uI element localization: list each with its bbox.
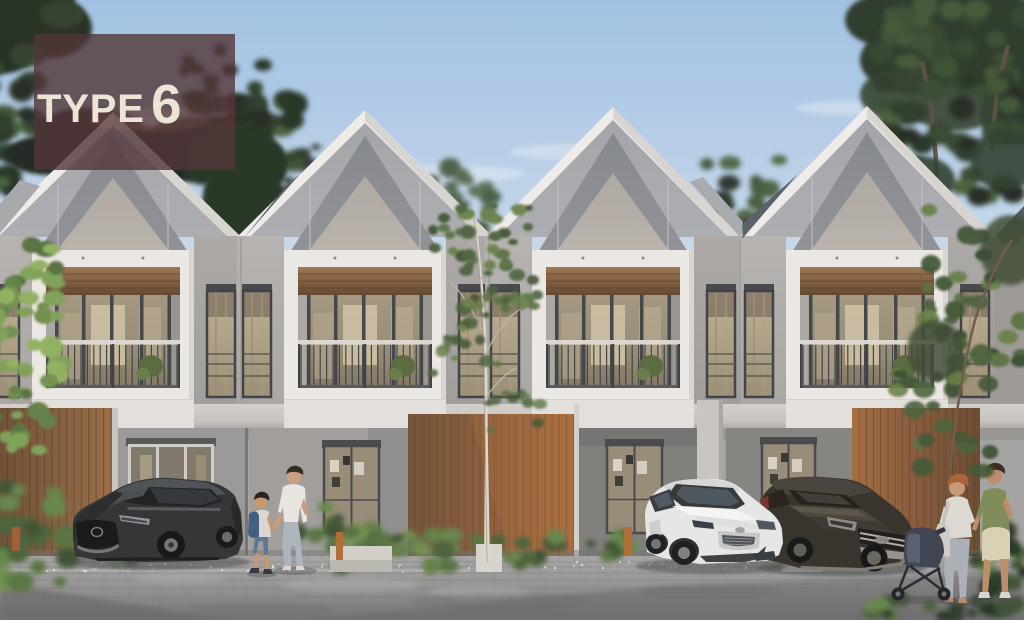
svg-text:TYPE: TYPE: [37, 87, 145, 131]
svg-text:6: 6: [151, 73, 182, 135]
